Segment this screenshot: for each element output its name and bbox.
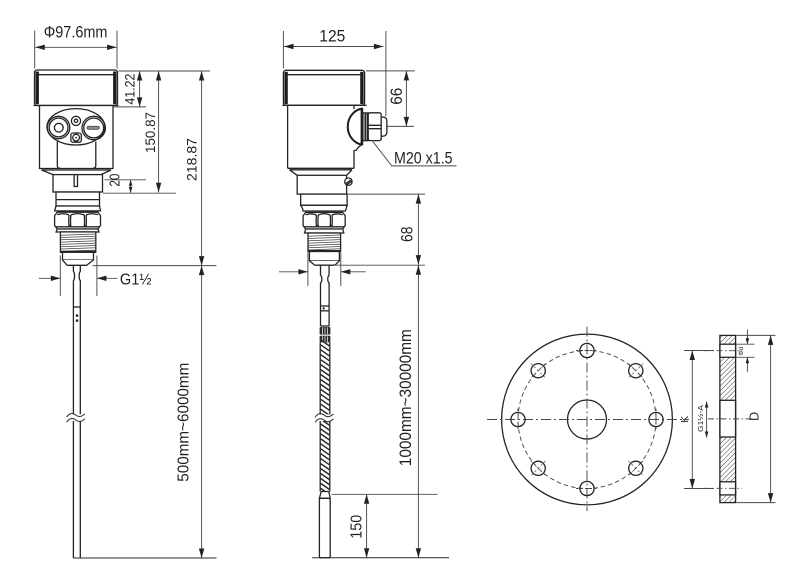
svg-text:150: 150 xyxy=(349,514,366,538)
svg-text:41.22: 41.22 xyxy=(121,73,137,104)
svg-text:125: 125 xyxy=(319,27,345,45)
svg-text:66: 66 xyxy=(387,88,406,105)
svg-text:150.87: 150.87 xyxy=(142,112,158,153)
svg-text:500mm~6000mm: 500mm~6000mm xyxy=(175,363,192,482)
svg-text:K: K xyxy=(679,416,691,423)
svg-text:D: D xyxy=(748,412,762,421)
svg-text:20: 20 xyxy=(106,174,123,187)
svg-text:218.87: 218.87 xyxy=(183,138,199,181)
svg-text:G1½: G1½ xyxy=(120,271,152,288)
svg-text:G1½-A: G1½-A xyxy=(696,405,705,432)
svg-text:Φd: Φd xyxy=(738,346,745,355)
svg-text:M20 x1.5: M20 x1.5 xyxy=(394,148,453,167)
svg-text:68: 68 xyxy=(397,227,416,243)
svg-text:Φ97.6mm: Φ97.6mm xyxy=(44,23,108,42)
svg-text:1000mm~30000mm: 1000mm~30000mm xyxy=(397,329,415,466)
